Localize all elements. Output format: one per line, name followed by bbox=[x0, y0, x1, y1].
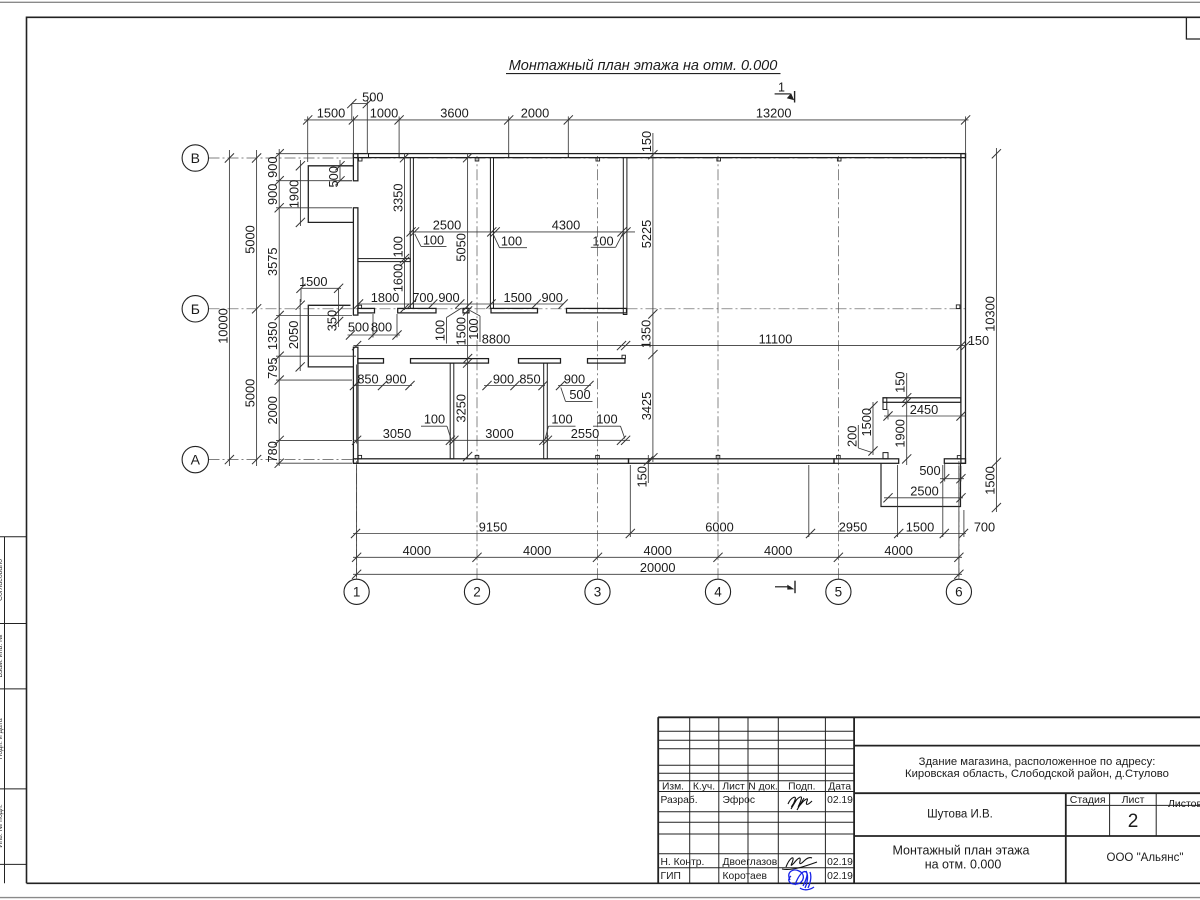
svg-text:2: 2 bbox=[1128, 811, 1139, 832]
svg-text:Коротаев: Коротаев bbox=[723, 871, 768, 882]
svg-text:3425: 3425 bbox=[639, 392, 654, 420]
svg-text:700: 700 bbox=[412, 290, 433, 305]
svg-text:Согласовано: Согласовано bbox=[0, 559, 4, 601]
svg-text:10300: 10300 bbox=[982, 296, 997, 332]
svg-text:100: 100 bbox=[551, 412, 572, 427]
svg-text:20000: 20000 bbox=[640, 560, 676, 575]
svg-text:Н. Контр.: Н. Контр. bbox=[661, 857, 705, 868]
svg-text:900: 900 bbox=[493, 371, 514, 386]
svg-text:1350: 1350 bbox=[265, 322, 280, 350]
svg-text:350: 350 bbox=[325, 310, 340, 331]
svg-text:Эфрос: Эфрос bbox=[723, 794, 755, 806]
svg-text:2050: 2050 bbox=[286, 321, 301, 349]
svg-text:1500: 1500 bbox=[906, 519, 934, 534]
svg-text:1350: 1350 bbox=[639, 320, 654, 348]
svg-text:Монтажный план этажа на отм. 0: Монтажный план этажа на отм. 0.000 bbox=[509, 58, 778, 74]
svg-text:1600: 1600 bbox=[391, 264, 406, 292]
svg-text:500: 500 bbox=[326, 166, 341, 187]
svg-text:А: А bbox=[191, 452, 201, 468]
svg-text:К.уч.: К.уч. bbox=[693, 782, 715, 793]
svg-text:Б: Б bbox=[191, 301, 200, 317]
svg-text:10000: 10000 bbox=[215, 308, 230, 344]
svg-text:Лист: Лист bbox=[1122, 794, 1145, 806]
svg-text:3250: 3250 bbox=[454, 394, 469, 422]
svg-text:900: 900 bbox=[265, 157, 280, 178]
svg-text:500: 500 bbox=[569, 387, 590, 402]
svg-text:Взам. инв. №: Взам. инв. № bbox=[0, 634, 4, 677]
svg-text:3600: 3600 bbox=[440, 106, 468, 121]
svg-text:Дата: Дата bbox=[828, 782, 851, 793]
svg-text:900: 900 bbox=[438, 290, 459, 305]
svg-text:150: 150 bbox=[634, 466, 649, 487]
svg-text:Стадия: Стадия bbox=[1070, 794, 1106, 806]
svg-text:100: 100 bbox=[424, 412, 445, 427]
svg-text:1000: 1000 bbox=[370, 106, 398, 121]
svg-text:Изм.: Изм. bbox=[662, 782, 684, 793]
svg-text:5000: 5000 bbox=[243, 379, 258, 407]
svg-text:3050: 3050 bbox=[383, 426, 411, 441]
svg-text:3: 3 bbox=[594, 584, 602, 599]
svg-text:2000: 2000 bbox=[265, 396, 280, 424]
svg-text:13200: 13200 bbox=[756, 106, 792, 121]
svg-text:Листов: Листов bbox=[1168, 798, 1200, 810]
svg-text:1900: 1900 bbox=[286, 180, 301, 208]
svg-text:Подп. и дата: Подп. и дата bbox=[0, 718, 4, 759]
svg-text:Инв. № подл.: Инв. № подл. bbox=[0, 804, 4, 848]
svg-text:2500: 2500 bbox=[433, 218, 461, 233]
svg-text:Разраб.: Разраб. bbox=[661, 794, 698, 806]
svg-text:200: 200 bbox=[844, 426, 859, 447]
svg-text:780: 780 bbox=[265, 441, 280, 462]
svg-text:5: 5 bbox=[835, 584, 843, 599]
svg-text:850: 850 bbox=[519, 371, 540, 386]
svg-text:500: 500 bbox=[919, 463, 940, 478]
svg-text:500: 500 bbox=[348, 320, 369, 335]
svg-text:1500: 1500 bbox=[299, 274, 327, 289]
svg-text:100: 100 bbox=[596, 412, 617, 427]
svg-text:Подп.: Подп. bbox=[788, 782, 815, 793]
svg-text:4000: 4000 bbox=[764, 543, 792, 558]
svg-text:1: 1 bbox=[778, 81, 785, 95]
svg-text:ООО "Альянс": ООО "Альянс" bbox=[1107, 852, 1184, 864]
svg-text:100: 100 bbox=[391, 236, 406, 257]
svg-text:3350: 3350 bbox=[391, 184, 406, 212]
svg-text:5225: 5225 bbox=[639, 220, 654, 248]
svg-text:2950: 2950 bbox=[839, 519, 867, 534]
svg-text:900: 900 bbox=[542, 290, 563, 305]
svg-text:02.19: 02.19 bbox=[827, 857, 853, 868]
svg-text:100: 100 bbox=[433, 320, 448, 341]
svg-text:900: 900 bbox=[564, 371, 585, 386]
svg-text:2500: 2500 bbox=[910, 484, 938, 499]
svg-text:100: 100 bbox=[423, 232, 444, 247]
svg-text:В: В bbox=[191, 150, 200, 166]
svg-text:100: 100 bbox=[466, 318, 481, 339]
svg-text:Кировская область, Слободской: Кировская область, Слободской район, д.С… bbox=[905, 768, 1169, 780]
svg-text:2000: 2000 bbox=[521, 106, 549, 121]
svg-text:2: 2 bbox=[473, 584, 481, 599]
svg-text:500: 500 bbox=[362, 89, 383, 104]
svg-text:Лист: Лист bbox=[722, 782, 745, 793]
svg-text:Здание магазина, расположенное: Здание магазина, расположенное по адресу… bbox=[919, 756, 1156, 768]
svg-text:900: 900 bbox=[265, 184, 280, 205]
svg-text:4000: 4000 bbox=[523, 543, 551, 558]
svg-text:4000: 4000 bbox=[884, 543, 912, 558]
svg-text:850: 850 bbox=[357, 371, 378, 386]
svg-text:02.19: 02.19 bbox=[827, 795, 853, 806]
svg-text:Двоеглазов: Двоеглазов bbox=[723, 857, 778, 868]
svg-text:Монтажный план этажа: Монтажный план этажа bbox=[893, 844, 1030, 858]
svg-text:150: 150 bbox=[893, 372, 908, 393]
svg-text:5000: 5000 bbox=[243, 225, 258, 253]
svg-text:1500: 1500 bbox=[982, 466, 997, 494]
svg-text:11100: 11100 bbox=[759, 331, 793, 346]
svg-text:2550: 2550 bbox=[571, 426, 599, 441]
svg-text:150: 150 bbox=[639, 131, 654, 152]
svg-text:3000: 3000 bbox=[485, 426, 513, 441]
svg-text:4300: 4300 bbox=[552, 218, 580, 233]
svg-text:1: 1 bbox=[353, 584, 361, 599]
svg-text:800: 800 bbox=[371, 320, 392, 335]
svg-text:6000: 6000 bbox=[705, 519, 733, 534]
svg-text:4000: 4000 bbox=[643, 543, 671, 558]
svg-text:1500: 1500 bbox=[317, 106, 345, 121]
svg-text:100: 100 bbox=[592, 233, 613, 248]
svg-text:5050: 5050 bbox=[454, 233, 469, 261]
svg-text:9150: 9150 bbox=[479, 519, 507, 534]
svg-text:150: 150 bbox=[968, 333, 989, 348]
svg-text:900: 900 bbox=[385, 371, 406, 386]
svg-text:02.19: 02.19 bbox=[827, 871, 853, 882]
svg-text:100: 100 bbox=[501, 234, 522, 249]
svg-text:1500: 1500 bbox=[503, 290, 531, 305]
svg-text:3575: 3575 bbox=[265, 247, 280, 275]
svg-text:4: 4 bbox=[714, 584, 722, 599]
svg-text:8800: 8800 bbox=[482, 331, 510, 346]
svg-text:ГИП: ГИП bbox=[661, 871, 681, 882]
svg-text:1900: 1900 bbox=[893, 419, 908, 447]
svg-text:N док.: N док. bbox=[748, 782, 777, 793]
svg-text:2450: 2450 bbox=[910, 402, 938, 417]
svg-text:700: 700 bbox=[974, 519, 995, 534]
svg-text:Шутова И.В.: Шутова И.В. bbox=[927, 809, 993, 821]
svg-text:4000: 4000 bbox=[403, 543, 431, 558]
svg-text:6: 6 bbox=[955, 584, 963, 599]
svg-text:на отм. 0.000: на отм. 0.000 bbox=[925, 858, 1002, 872]
svg-text:1500: 1500 bbox=[859, 408, 874, 436]
svg-text:795: 795 bbox=[265, 358, 280, 379]
